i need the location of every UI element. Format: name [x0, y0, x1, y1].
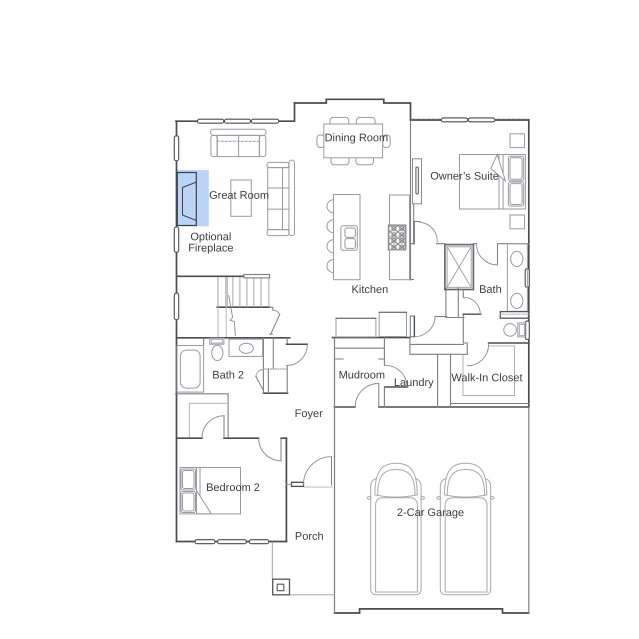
- svg-text:Walk-In Closet: Walk-In Closet: [451, 372, 522, 384]
- svg-text:Laundry: Laundry: [394, 377, 434, 389]
- svg-text:Optional: Optional: [190, 231, 231, 243]
- svg-text:Great Room: Great Room: [209, 190, 269, 202]
- svg-text:2-Car Garage: 2-Car Garage: [397, 507, 464, 519]
- svg-text:Bath: Bath: [479, 284, 502, 296]
- svg-text:Owner’s Suite: Owner’s Suite: [430, 171, 499, 183]
- svg-text:Fireplace: Fireplace: [188, 242, 233, 254]
- svg-text:Bath 2: Bath 2: [212, 370, 244, 382]
- svg-text:Dining Room: Dining Room: [325, 132, 389, 144]
- svg-text:Mudroom: Mudroom: [339, 370, 385, 382]
- svg-text:Bedroom 2: Bedroom 2: [206, 482, 260, 494]
- svg-text:Kitchen: Kitchen: [352, 284, 389, 296]
- svg-text:Foyer: Foyer: [295, 408, 323, 420]
- svg-text:Porch: Porch: [295, 531, 324, 543]
